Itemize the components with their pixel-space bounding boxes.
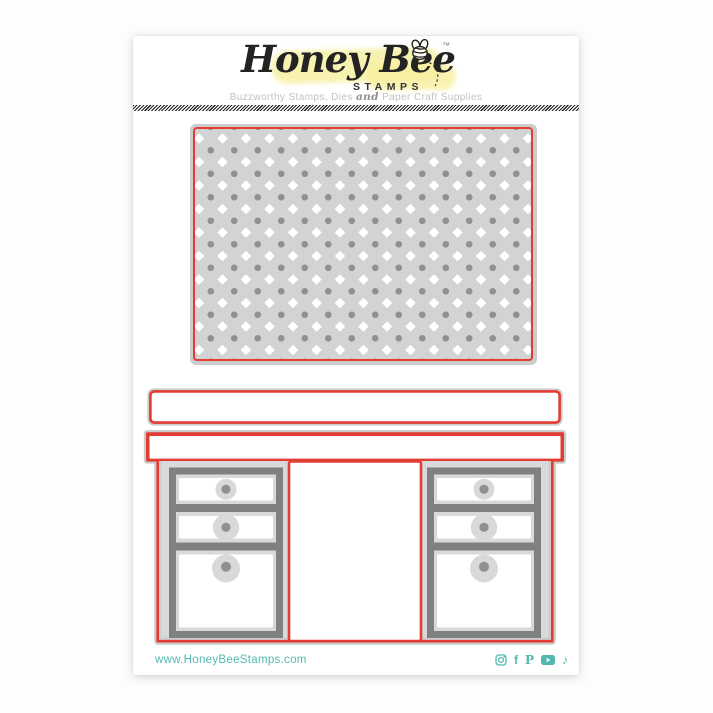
pinterest-icon[interactable]: P — [525, 653, 534, 667]
apron-window-cut — [148, 435, 561, 460]
brand-tagline: Buzzworthy Stamps, Dies and Paper Craft … — [133, 91, 579, 103]
tagline-part1: Buzzworthy Stamps, Dies — [230, 92, 356, 103]
instagram-icon[interactable] — [495, 654, 507, 666]
striped-divider — [133, 105, 579, 111]
pattern-panel-cutline — [193, 127, 533, 361]
youtube-icon[interactable] — [541, 655, 555, 665]
website-link[interactable]: www.HoneyBeeStamps.com — [155, 654, 307, 666]
tagline-and: and — [356, 91, 379, 103]
pattern-panel-die — [190, 124, 537, 365]
social-icons: f P ♪ — [495, 653, 568, 667]
product-card: Honey Bee ™ STAMPS Buzzworthy Stamps, Di… — [133, 36, 579, 675]
desk-die — [140, 385, 570, 650]
kneehole-cut — [289, 462, 421, 642]
desk-top-rail-die — [149, 390, 562, 425]
trademark-symbol: ™ — [442, 41, 450, 50]
facebook-icon[interactable]: f — [514, 653, 518, 667]
tagline-part2: Paper Craft Supplies — [379, 92, 482, 103]
tiktok-icon[interactable]: ♪ — [562, 653, 568, 667]
dot-diamond-pattern — [195, 129, 531, 359]
